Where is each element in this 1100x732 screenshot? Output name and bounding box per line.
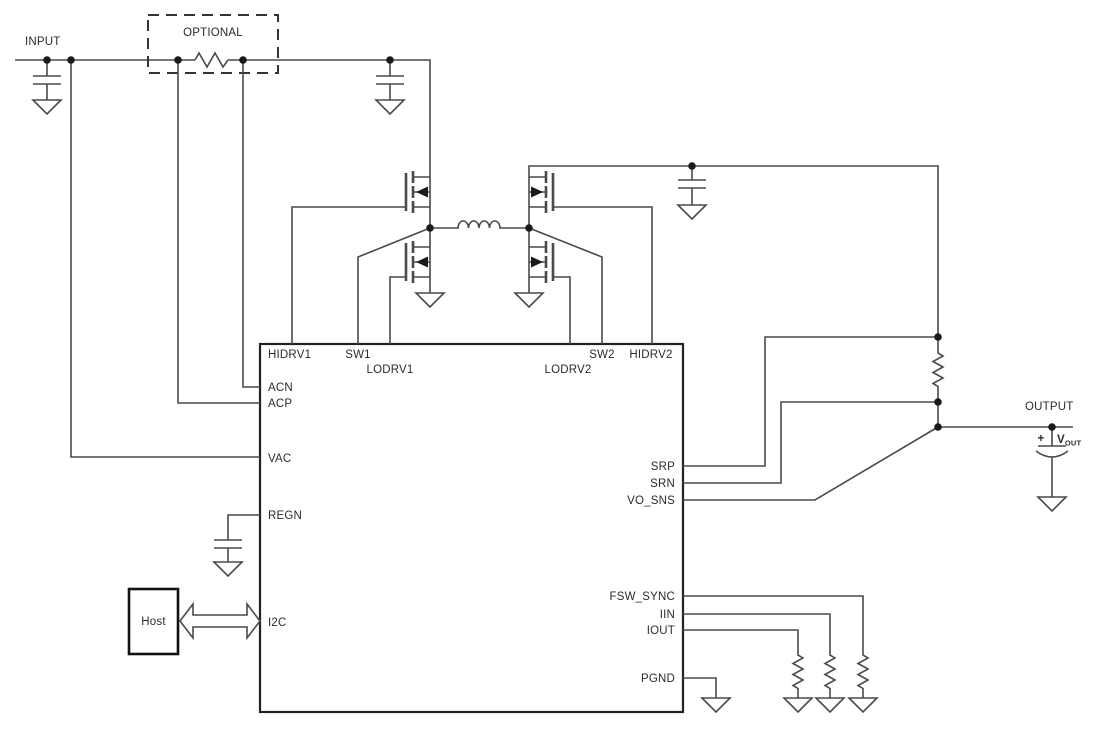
i2c-bidirectional-arrow-icon [180,604,260,638]
ground-icon [784,698,812,712]
input-rail [15,53,430,228]
ground-icon [33,100,61,114]
ic-block [260,344,683,712]
pin-label-lodrv1: LODRV1 [366,364,413,376]
inductor-icon [430,221,529,228]
ground-icon [416,293,444,307]
ground-icon [816,698,844,712]
lodrv2-wire [553,277,570,344]
srn-wire [683,402,938,483]
pin-label-srn: SRN [650,478,675,490]
input-capacitor [33,60,61,114]
input-label: INPUT [25,36,61,48]
pin-label-vo-sns: VO_SNS [627,495,675,507]
pin-label-lodrv2: LODRV2 [544,364,591,376]
pin-label-sw2: SW2 [589,349,615,361]
optional-box [148,15,278,73]
nmos-q2-icon [529,171,553,213]
output-label: OUTPUT [1025,401,1073,413]
ground-icon [376,100,404,114]
ground-icon [702,698,730,712]
pin-label-vac: VAC [268,453,291,465]
ground-icon [678,205,706,219]
pin-label-fsw-sync: FSW_SYNC [610,591,676,603]
pin-label-iin: IIN [660,609,675,621]
vac-wire [71,60,260,457]
vout-label: VOUT [1057,434,1082,448]
circuit-schematic: INPUT OPTIONAL OUTPUT + VOUT Host HIDRV1… [0,0,1100,732]
nmos-q1-icon [406,171,430,213]
pin-label-sw1: SW1 [345,349,371,361]
host-label: Host [141,616,166,628]
ground-icon [214,562,242,576]
pin-label-pgnd: PGND [641,673,675,685]
sw1-wire [358,228,430,344]
pin-label-acp: ACP [268,398,292,410]
pin-label-i2c: I2C [268,617,287,629]
lodrv1-wire [390,277,406,344]
output-rail-capacitor [678,166,706,219]
acn-wire [243,60,260,387]
acp-wire [178,60,260,403]
iout-resistor [683,630,812,712]
optional-label: OPTIONAL [183,27,243,39]
optional-resistor [195,53,228,67]
pin-label-iout: IOUT [647,625,675,637]
ground-icon [515,293,543,307]
pin-label-srp: SRP [651,461,675,473]
pgnd-wire [683,678,730,712]
nmos-q4-icon [515,228,553,307]
ground-icon [849,698,877,712]
ground-icon [1038,497,1066,511]
regn-capacitor [214,515,260,576]
pin-label-hidrv1: HIDRV1 [268,349,311,361]
pin-label-regn: REGN [268,510,302,522]
vo-sns-wire [683,427,938,500]
pin-label-acn: ACN [268,382,293,394]
sense-resistor [933,337,943,427]
hidrv1-wire [292,207,406,344]
high-side-rail [529,166,938,337]
bulk-capacitor [376,60,404,114]
sw2-wire [529,228,602,344]
nmos-q3-icon [406,228,444,307]
schematic-page: INPUT OPTIONAL OUTPUT + VOUT Host HIDRV1… [0,0,1100,732]
vout-plus-sign: + [1038,433,1045,445]
pin-label-hidrv2: HIDRV2 [629,349,672,361]
